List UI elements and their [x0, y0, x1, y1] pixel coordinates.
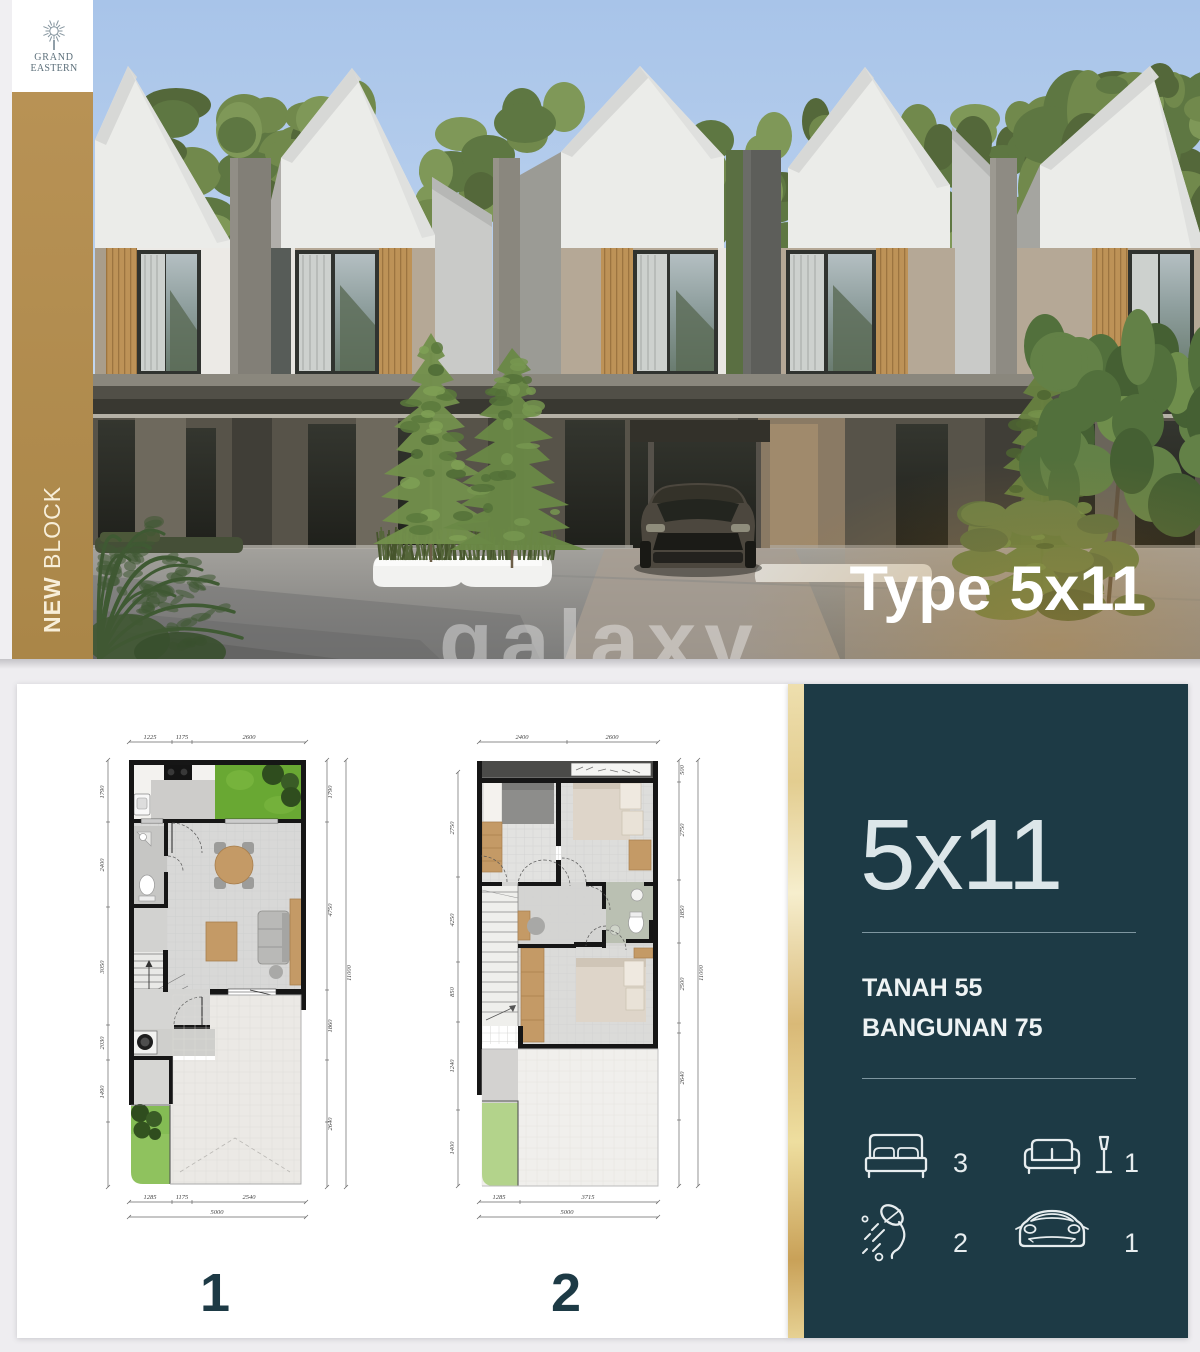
svg-text:1175: 1175 [176, 734, 189, 741]
svg-text:1285: 1285 [144, 1194, 158, 1201]
svg-text:2640: 2640 [679, 1071, 686, 1085]
svg-text:galaxy: galaxy [439, 592, 761, 659]
svg-text:2540: 2540 [243, 1194, 257, 1201]
svg-text:1860: 1860 [327, 1019, 334, 1033]
svg-text:Type 5x11: Type 5x11 [849, 554, 1146, 624]
svg-text:1490: 1490 [99, 1085, 106, 1099]
svg-text:1175: 1175 [176, 1194, 189, 1201]
svg-text:3050: 3050 [99, 960, 106, 975]
svg-text:1240: 1240 [449, 1059, 456, 1073]
svg-text:2030: 2030 [99, 1036, 106, 1050]
svg-text:4250: 4250 [449, 913, 456, 927]
svg-text:2400: 2400 [99, 858, 106, 872]
svg-text:2400: 2400 [516, 734, 530, 741]
svg-text:500: 500 [679, 764, 686, 775]
svg-text:11000: 11000 [698, 964, 705, 981]
svg-text:2640: 2640 [327, 1117, 334, 1131]
svg-text:1225: 1225 [144, 734, 158, 741]
svg-text:1: 1 [1124, 1148, 1139, 1178]
svg-text:3715: 3715 [581, 1194, 596, 1201]
svg-text:3: 3 [953, 1148, 968, 1178]
svg-text:1: 1 [1124, 1228, 1139, 1258]
svg-text:2: 2 [953, 1228, 968, 1258]
svg-text:850: 850 [449, 986, 456, 997]
svg-text:1400: 1400 [449, 1141, 456, 1155]
svg-text:11000: 11000 [346, 964, 353, 981]
svg-text:5000: 5000 [561, 1209, 575, 1216]
svg-text:2600: 2600 [606, 734, 620, 741]
svg-text:2750: 2750 [679, 823, 686, 837]
svg-text:2500: 2500 [679, 977, 686, 991]
svg-text:2600: 2600 [243, 734, 257, 741]
svg-text:GRAND: GRAND [34, 52, 74, 63]
svg-text:2750: 2750 [449, 821, 456, 835]
svg-text:EASTERN: EASTERN [30, 63, 77, 74]
svg-text:1285: 1285 [493, 1194, 507, 1201]
svg-text:NEW BLOCK: NEW BLOCK [39, 486, 65, 633]
svg-text:5000: 5000 [211, 1209, 225, 1216]
svg-text:4750: 4750 [327, 903, 334, 917]
svg-text:1790: 1790 [327, 785, 334, 799]
svg-text:1850: 1850 [679, 905, 686, 919]
svg-text:1790: 1790 [99, 785, 106, 799]
